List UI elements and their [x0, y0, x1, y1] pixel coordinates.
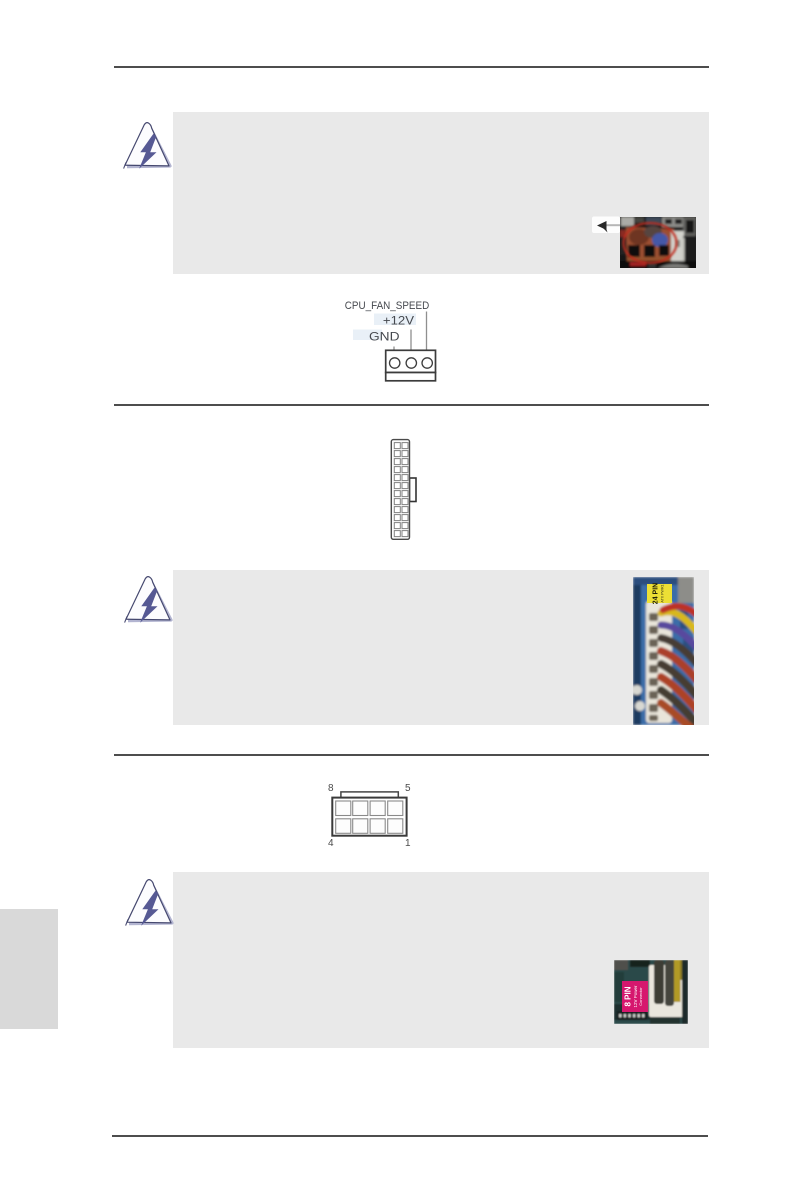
svg-text:ATX PWR1: ATX PWR1 [661, 584, 665, 602]
svg-text:8 PIN: 8 PIN [624, 986, 633, 1006]
svg-text:1: 1 [405, 838, 411, 849]
svg-text:Connector: Connector [638, 987, 643, 1006]
svg-text:24 PIN: 24 PIN [653, 583, 660, 604]
svg-text:4: 4 [328, 838, 334, 849]
svg-text:8: 8 [328, 783, 334, 794]
svg-text:5: 5 [405, 783, 411, 794]
